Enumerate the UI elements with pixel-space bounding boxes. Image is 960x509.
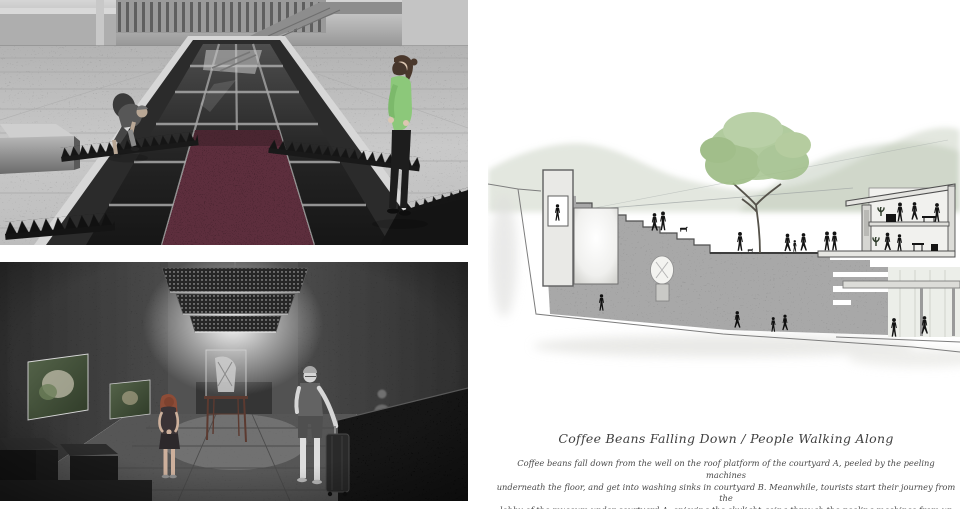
presentation-board: Coffee Beans Falling Down / People Walki… (0, 0, 960, 509)
drawing-caption: Coffee beans fall down from the well on … (496, 458, 956, 509)
caption-line: underneath the floor, and get into washi… (496, 482, 956, 506)
section-drawing (488, 0, 960, 428)
people-on-platform (737, 232, 837, 253)
elevator-shaft (543, 170, 573, 286)
shadow (372, 219, 428, 229)
caption-line: lobby of the museum under courtyard A, e… (496, 505, 956, 509)
render-courtyard-skylight (0, 0, 468, 245)
render-museum-interior (0, 262, 468, 501)
drawing-title: Coffee Beans Falling Down / People Walki… (500, 431, 952, 446)
lobby-room (574, 208, 618, 284)
people-on-stairs (651, 212, 687, 232)
caption-line: Coffee beans fall down from the well on … (496, 458, 956, 482)
vignette (0, 262, 468, 501)
